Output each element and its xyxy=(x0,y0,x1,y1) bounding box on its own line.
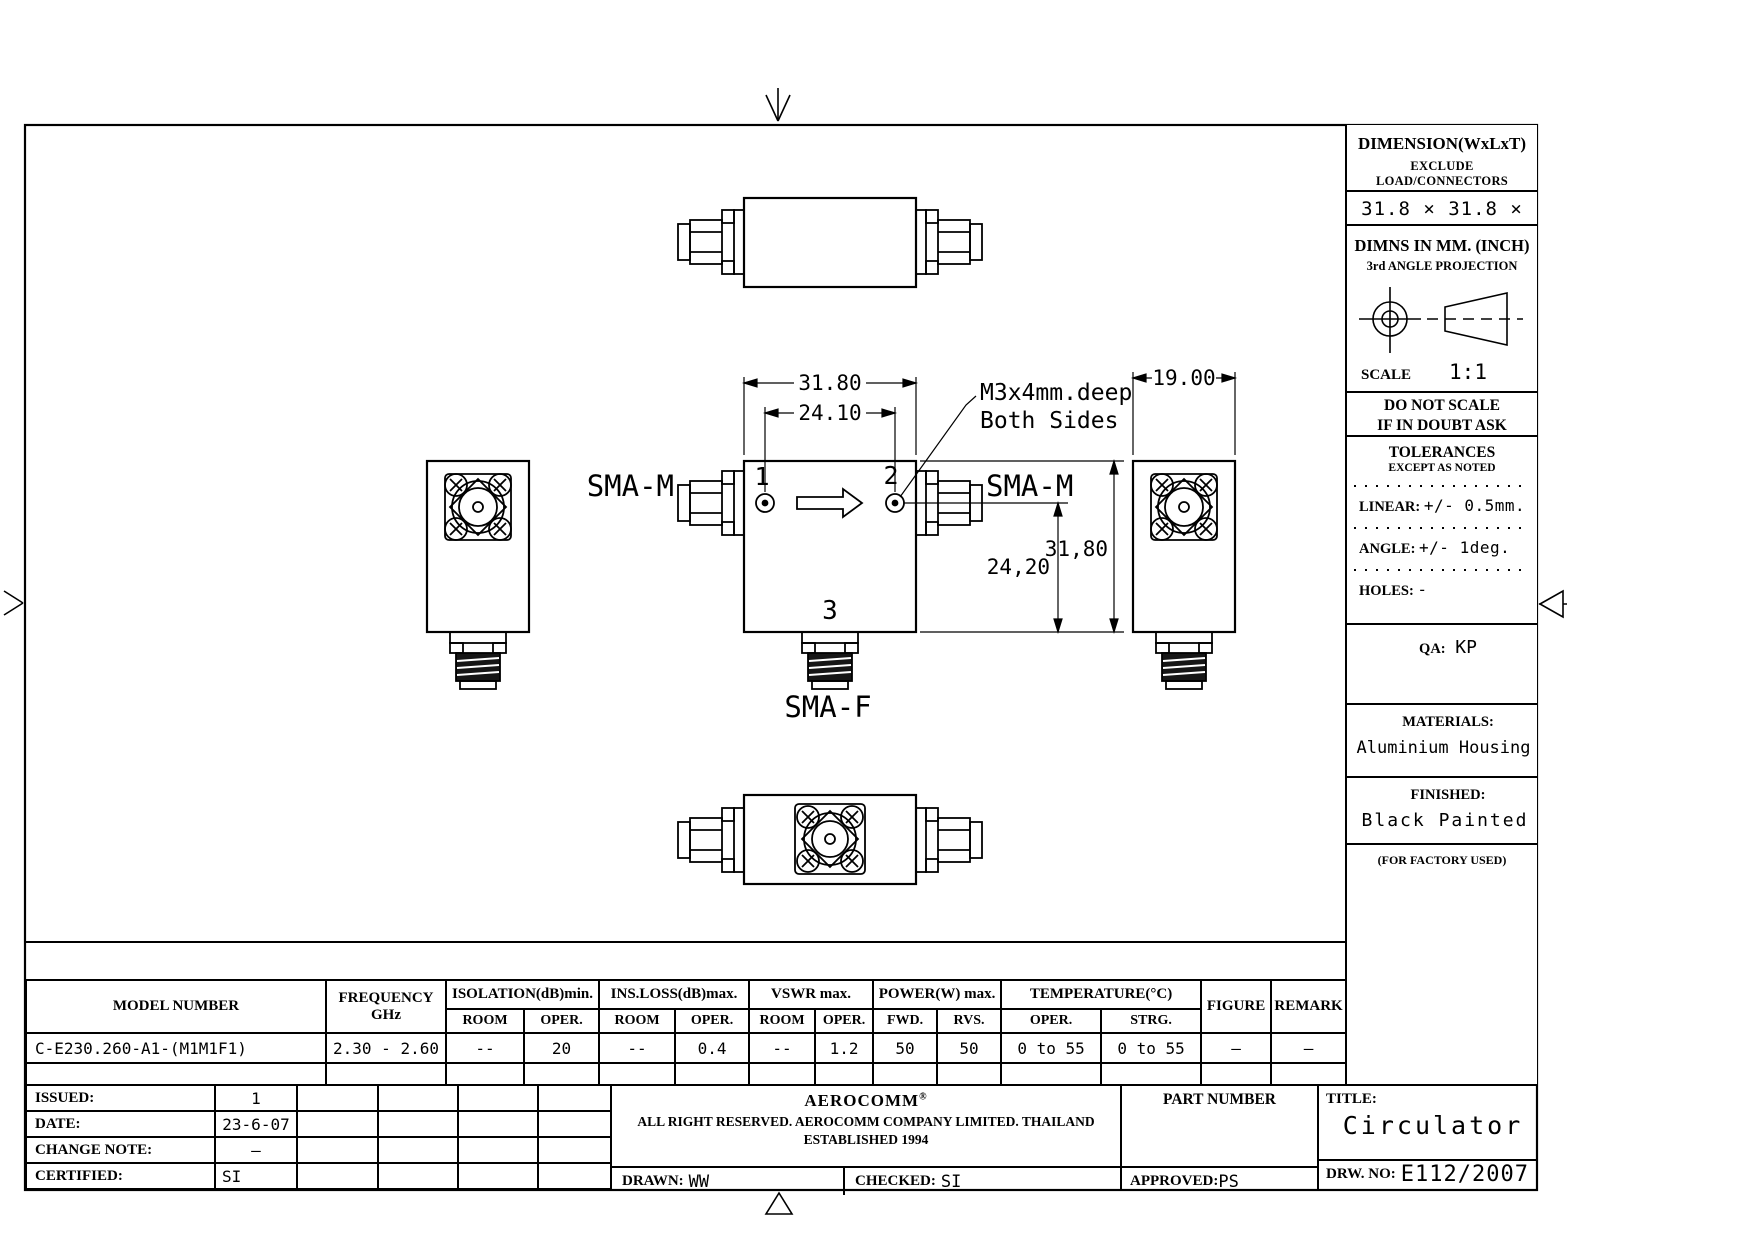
frequency-value: 2.30 - 2.60 xyxy=(326,1033,446,1063)
header-ins-loss: INS.LOSS(dB)max. xyxy=(599,980,749,1009)
registered-trademark-icon: ® xyxy=(919,1091,927,1102)
empty-cell xyxy=(26,1063,326,1085)
finished-label: FINISHED: xyxy=(1347,778,1537,804)
qa-row: QA: KP xyxy=(1347,625,1537,658)
approved-label: APPROVED: xyxy=(1130,1173,1218,1190)
tolerances-section: TOLERANCES EXCEPT AS NOTED LINEAR: +/- 0… xyxy=(1347,437,1537,625)
linear-value: +/- 0.5mm. xyxy=(1424,496,1525,515)
screw-note-line2: Both Sides xyxy=(980,408,1118,434)
info-panel: DIMENSION(WxLxT) EXCLUDE LOAD/CONNECTORS… xyxy=(1345,125,1537,1084)
empty-cell xyxy=(326,1063,446,1085)
right-side-view xyxy=(1133,461,1235,689)
spec-empty-row xyxy=(26,1063,1346,1085)
empty-cell xyxy=(538,1163,611,1189)
left-side-view xyxy=(427,461,529,689)
angle-tolerance-row: ANGLE: +/- 1deg. xyxy=(1347,538,1537,558)
company-name-text: AEROCOMM xyxy=(804,1091,919,1110)
finished-section: FINISHED: Black Painted xyxy=(1347,778,1537,845)
sma-connector-right xyxy=(916,210,982,274)
issued-label: ISSUED: xyxy=(26,1085,215,1111)
empty-cell xyxy=(446,1063,524,1085)
factory-section: (FOR FACTORY USED) xyxy=(1347,845,1537,1082)
do-not-scale-section: DO NOT SCALE IF IN DOUBT ASK xyxy=(1347,393,1537,437)
empty-cell xyxy=(675,1063,749,1085)
empty-cell xyxy=(538,1085,611,1111)
empty-cell xyxy=(378,1137,458,1163)
dim-port-height-text: 24,20 xyxy=(987,555,1050,579)
title-cell: TITLE: Circulator xyxy=(1319,1086,1537,1161)
temp-oper-value: 0 to 55 xyxy=(1001,1033,1101,1063)
company-line3: ESTABLISHED 1994 xyxy=(612,1132,1120,1148)
dim-height-text: 31,80 xyxy=(1045,537,1108,561)
dimension-value-section: 31.8 × 31.8 × 19 xyxy=(1347,192,1537,226)
subheader: ROOM xyxy=(446,1009,524,1033)
ins-loss-room-value: -- xyxy=(599,1033,675,1063)
empty-cell xyxy=(538,1137,611,1163)
materials-value: Aluminium Housing xyxy=(1347,738,1537,758)
sma-connector-left xyxy=(678,471,744,535)
sma-flange xyxy=(795,804,865,874)
empty-cell xyxy=(538,1111,611,1137)
header-frequency-line1: FREQUENCY xyxy=(327,990,445,1007)
port-2-label: 2 xyxy=(883,461,898,490)
empty-cell xyxy=(297,1163,378,1189)
sma-connector-left xyxy=(678,210,744,274)
front-view: 1 2 3 xyxy=(678,461,982,689)
scale-value: 1:1 xyxy=(1449,360,1487,384)
drawing-sheet: 1 2 3 31.80 24.10 M3x4mm.deep Both Si xyxy=(0,0,1754,1240)
subheader: OPER. xyxy=(815,1009,873,1033)
revision-block: ISSUED: 1 DATE: 23-6-07 CHANGE NOTE: – C… xyxy=(25,1084,612,1190)
certified-value: SI xyxy=(215,1163,297,1189)
empty-cell xyxy=(1101,1063,1201,1085)
holes-label: HOLES: xyxy=(1359,583,1414,599)
empty-cell xyxy=(599,1063,675,1085)
title-label: TITLE: xyxy=(1319,1086,1537,1108)
empty-cell xyxy=(297,1137,378,1163)
tolerances-subheader: EXCEPT AS NOTED xyxy=(1347,462,1537,474)
dimension-header: DIMENSION(WxLxT) xyxy=(1347,134,1537,154)
title-block: TITLE: Circulator DRW. NO: E112/2007 xyxy=(1317,1084,1537,1190)
part-number-cell: PART NUMBER xyxy=(1122,1091,1317,1168)
drawn-value: WW xyxy=(689,1172,709,1192)
table-top-strip xyxy=(25,941,1345,979)
right-center-mark xyxy=(1539,591,1567,617)
dim-port-spacing: 24.10 xyxy=(765,401,895,492)
model-number-value: C-E230.260-A1-(M1M1F1) xyxy=(26,1033,326,1063)
empty-cell xyxy=(378,1163,458,1189)
sma-f-connector-bottom xyxy=(802,632,858,689)
subheader: OPER. xyxy=(524,1009,599,1033)
drw-no-label: DRW. NO: xyxy=(1326,1166,1396,1183)
flow-arrow xyxy=(797,489,862,517)
drawn-label: DRAWN: xyxy=(622,1173,684,1190)
qa-label: QA: xyxy=(1419,641,1446,657)
company-block: AEROCOMM® ALL RIGHT RESERVED. AEROCOMM C… xyxy=(610,1084,1120,1190)
sma-flange xyxy=(1151,474,1217,540)
company-line2: ALL RIGHT RESERVED. AEROCOMM COMPANY LIM… xyxy=(612,1114,1120,1130)
dim-thickness: 19.00 xyxy=(1133,366,1235,455)
dim-width-text: 31.80 xyxy=(798,371,861,395)
empty-cell xyxy=(1001,1063,1101,1085)
header-figure: FIGURE xyxy=(1201,980,1271,1033)
figure-value: — xyxy=(1201,1033,1271,1063)
company-info: AEROCOMM® ALL RIGHT RESERVED. AEROCOMM C… xyxy=(612,1091,1120,1168)
bottom-view xyxy=(678,795,982,884)
subheader: OPER. xyxy=(1001,1009,1101,1033)
qa-value: KP xyxy=(1455,637,1477,658)
angle-value: +/- 1deg. xyxy=(1419,538,1510,557)
finished-value: Black Painted xyxy=(1347,810,1537,831)
empty-cell xyxy=(378,1085,458,1111)
top-view xyxy=(678,198,982,287)
drw-no-cell: DRW. NO: E112/2007 xyxy=(1319,1161,1537,1188)
screw-note-line1: M3x4mm.deep xyxy=(980,380,1132,406)
company-name: AEROCOMM® xyxy=(612,1091,1120,1111)
vswr-room-value: -- xyxy=(749,1033,815,1063)
issued-row: ISSUED: 1 xyxy=(26,1085,611,1111)
dim-thickness-text: 19.00 xyxy=(1152,366,1215,390)
empty-cell xyxy=(458,1085,538,1111)
dotted-divider xyxy=(1354,527,1530,529)
spec-table: MODEL NUMBER FREQUENCY GHz ISOLATION(dB)… xyxy=(25,979,1347,1086)
power-rvs-value: 50 xyxy=(937,1033,1001,1063)
empty-cell xyxy=(458,1111,538,1137)
tolerances-header: TOLERANCES xyxy=(1347,437,1537,462)
date-label: DATE: xyxy=(26,1111,215,1137)
approved-value: PS xyxy=(1218,1172,1238,1192)
drawn-cell: DRAWN: WW xyxy=(612,1168,845,1195)
do-not-scale-line2: IF IN DOUBT ASK xyxy=(1347,416,1537,436)
subheader: ROOM xyxy=(749,1009,815,1033)
scale-row: SCALE 1:1 xyxy=(1347,360,1537,384)
do-not-scale-line1: DO NOT SCALE xyxy=(1347,393,1537,416)
ins-loss-oper-value: 0.4 xyxy=(675,1033,749,1063)
header-frequency-line2: GHz xyxy=(327,1007,445,1024)
checked-label: CHECKED: xyxy=(855,1173,936,1190)
holes-value: - xyxy=(1417,580,1427,599)
dimension-subheader: EXCLUDE LOAD/CONNECTORS xyxy=(1347,159,1537,189)
spec-data-row: C-E230.260-A1-(M1M1F1) 2.30 - 2.60 -- 20… xyxy=(26,1033,1346,1063)
linear-label: LINEAR: xyxy=(1359,499,1420,515)
factory-note: (FOR FACTORY USED) xyxy=(1347,845,1537,868)
header-frequency: FREQUENCY GHz xyxy=(326,980,446,1033)
certified-row: CERTIFIED: SI xyxy=(26,1163,611,1189)
part-number-label: PART NUMBER xyxy=(1122,1091,1317,1109)
change-note-label: CHANGE NOTE: xyxy=(26,1137,215,1163)
left-center-mark xyxy=(4,591,23,615)
empty-cell xyxy=(1201,1063,1271,1085)
sma-f-connector-bottom xyxy=(450,632,506,689)
sma-f-connector-bottom xyxy=(1156,632,1212,689)
approved-cell: APPROVED: PS xyxy=(1122,1168,1317,1195)
subheader: RVS. xyxy=(937,1009,1001,1033)
date-row: DATE: 23-6-07 xyxy=(26,1111,611,1137)
isolation-room-value: -- xyxy=(446,1033,524,1063)
temp-strg-value: 0 to 55 xyxy=(1101,1033,1201,1063)
certified-label: CERTIFIED: xyxy=(26,1163,215,1189)
port-2-hole xyxy=(886,494,904,512)
issued-value: 1 xyxy=(215,1085,297,1111)
empty-cell xyxy=(378,1111,458,1137)
checked-cell: CHECKED: SI xyxy=(845,1168,1120,1195)
port-3-label: 3 xyxy=(822,596,838,626)
remark-value: — xyxy=(1271,1033,1346,1063)
angle-label: ANGLE: xyxy=(1359,541,1415,557)
header-isolation: ISOLATION(dB)min. xyxy=(446,980,599,1009)
header-model-number: MODEL NUMBER xyxy=(26,980,326,1033)
sma-m-right-label: SMA-M xyxy=(986,469,1073,503)
qa-section: QA: KP xyxy=(1347,625,1537,705)
bottom-center-mark xyxy=(766,1193,792,1214)
empty-cell xyxy=(873,1063,937,1085)
dim-port-spacing-text: 24.10 xyxy=(798,401,861,425)
subheader: FWD. xyxy=(873,1009,937,1033)
vswr-oper-value: 1.2 xyxy=(815,1033,873,1063)
port-1-hole xyxy=(756,494,774,512)
empty-cell xyxy=(815,1063,873,1085)
part-number-block: PART NUMBER APPROVED: PS xyxy=(1120,1084,1317,1190)
dotted-divider xyxy=(1354,485,1530,487)
subheader: OPER. xyxy=(675,1009,749,1033)
empty-cell xyxy=(297,1085,378,1111)
port-1-label: 1 xyxy=(754,462,769,491)
empty-cell xyxy=(1271,1063,1346,1085)
projection-section: DIMNS IN MM. (INCH) 3rd ANGLE PROJECTION… xyxy=(1347,226,1537,393)
empty-cell xyxy=(458,1163,538,1189)
title-value: Circulator xyxy=(1319,1111,1537,1140)
scale-label: SCALE xyxy=(1361,367,1411,384)
subheader: ROOM xyxy=(599,1009,675,1033)
header-remark: REMARK xyxy=(1271,980,1346,1033)
holes-row: HOLES: - xyxy=(1347,580,1537,600)
empty-cell xyxy=(297,1111,378,1137)
power-fwd-value: 50 xyxy=(873,1033,937,1063)
top-center-mark xyxy=(766,88,790,121)
sma-connector-left xyxy=(678,808,744,872)
header-temperature: TEMPERATURE(°C) xyxy=(1001,980,1201,1009)
linear-tolerance-row: LINEAR: +/- 0.5mm. xyxy=(1347,496,1537,516)
empty-cell xyxy=(937,1063,1001,1085)
empty-cell xyxy=(749,1063,815,1085)
units-line: DIMNS IN MM. (INCH) xyxy=(1347,236,1537,256)
dotted-divider xyxy=(1354,569,1530,571)
header-vswr: VSWR max. xyxy=(749,980,873,1009)
signature-row: DRAWN: WW CHECKED: SI xyxy=(612,1168,1120,1195)
header-power: POWER(W) max. xyxy=(873,980,1001,1009)
change-note-value: – xyxy=(215,1137,297,1163)
sma-connector-right xyxy=(916,808,982,872)
materials-label: MATERIALS: xyxy=(1347,705,1537,731)
projection-line: 3rd ANGLE PROJECTION xyxy=(1347,259,1537,274)
dimension-section: DIMENSION(WxLxT) EXCLUDE LOAD/CONNECTORS xyxy=(1347,125,1537,192)
checked-value: SI xyxy=(941,1172,961,1192)
empty-cell xyxy=(458,1137,538,1163)
dimension-value: 31.8 × 31.8 × 19 xyxy=(1347,192,1537,226)
sma-flange xyxy=(445,474,511,540)
sma-f-label: SMA-F xyxy=(784,690,871,724)
subheader: STRG. xyxy=(1101,1009,1201,1033)
sma-m-left-label: SMA-M xyxy=(587,469,674,503)
third-angle-projection-icon xyxy=(1357,280,1527,358)
change-note-row: CHANGE NOTE: – xyxy=(26,1137,611,1163)
isolation-oper-value: 20 xyxy=(524,1033,599,1063)
date-value: 23-6-07 xyxy=(215,1111,297,1137)
drw-no-value: E112/2007 xyxy=(1401,1162,1529,1187)
materials-section: MATERIALS: Aluminium Housing xyxy=(1347,705,1537,778)
empty-cell xyxy=(524,1063,599,1085)
